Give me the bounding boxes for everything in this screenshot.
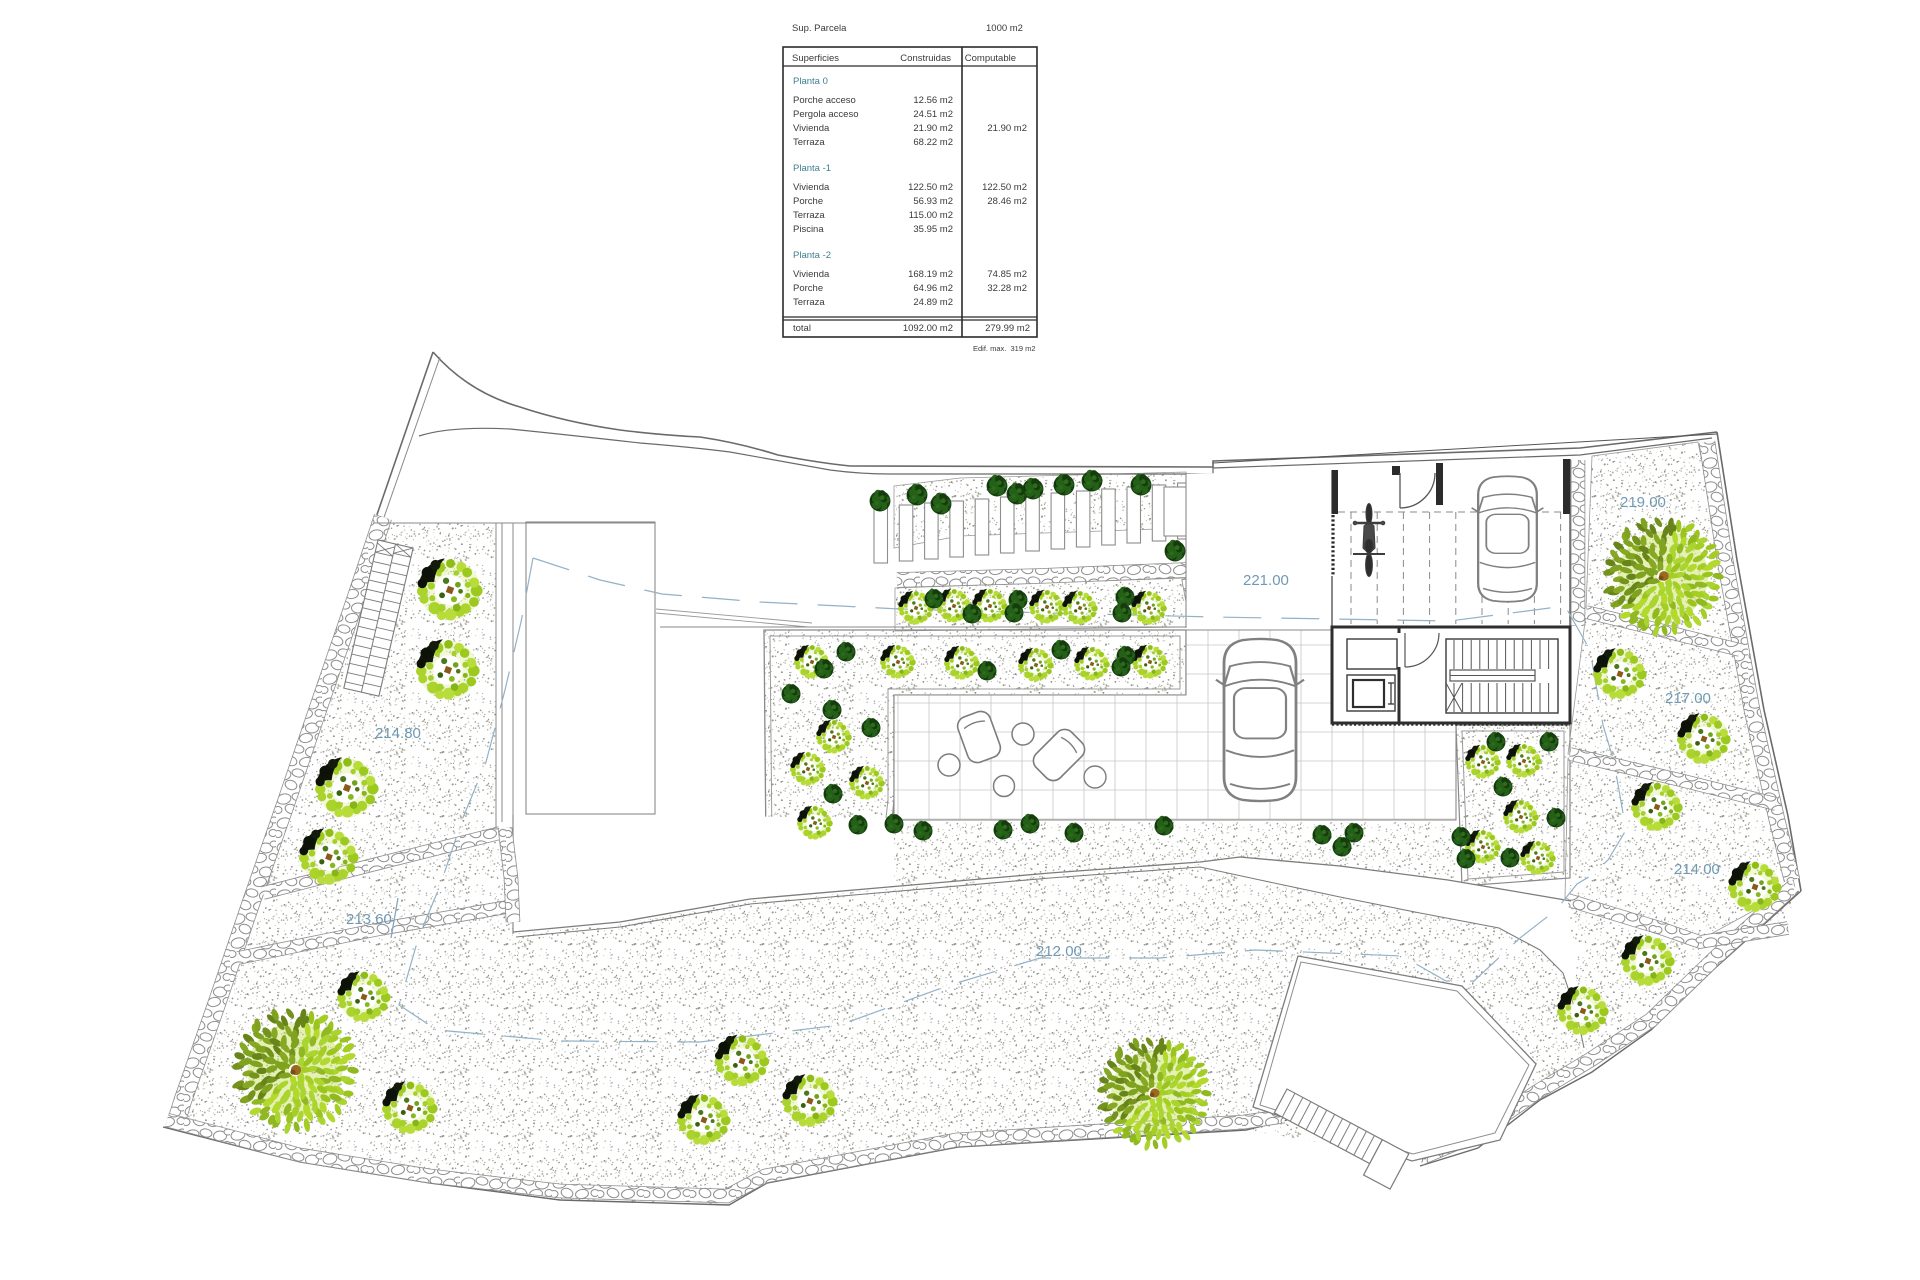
svg-text:Edif. max. 319 m2: Edif. max. 319 m2 <box>973 344 1036 353</box>
svg-text:32.28 m2: 32.28 m2 <box>987 283 1027 294</box>
svg-text:214.80: 214.80 <box>375 725 421 742</box>
svg-text:Terraza: Terraza <box>793 297 825 308</box>
svg-text:Sup. Parcela: Sup. Parcela <box>792 23 847 34</box>
svg-text:221.00: 221.00 <box>1243 572 1289 589</box>
svg-text:279.99 m2: 279.99 m2 <box>985 323 1030 334</box>
svg-text:1092.00 m2: 1092.00 m2 <box>903 323 953 334</box>
svg-text:Piscina: Piscina <box>793 224 824 235</box>
svg-text:total: total <box>793 323 811 334</box>
svg-text:Computable: Computable <box>965 53 1016 64</box>
svg-text:12.56 m2: 12.56 m2 <box>913 95 953 106</box>
svg-text:Porche acceso: Porche acceso <box>793 95 856 106</box>
svg-text:1000 m2: 1000 m2 <box>986 23 1023 34</box>
svg-text:214.00: 214.00 <box>1674 861 1720 878</box>
svg-text:21.90 m2: 21.90 m2 <box>913 123 953 134</box>
svg-text:212.00: 212.00 <box>1036 943 1082 960</box>
svg-text:115.00 m2: 115.00 m2 <box>909 210 953 221</box>
svg-text:Pergola acceso: Pergola acceso <box>793 109 858 120</box>
svg-text:213.60: 213.60 <box>346 911 392 928</box>
svg-text:56.93 m2: 56.93 m2 <box>913 196 953 207</box>
svg-text:219.00: 219.00 <box>1620 494 1666 511</box>
svg-text:Porche: Porche <box>793 196 823 207</box>
svg-text:24.89 m2: 24.89 m2 <box>913 297 953 308</box>
svg-text:122.50 m2: 122.50 m2 <box>982 182 1027 193</box>
svg-text:24.51 m2: 24.51 m2 <box>913 109 953 120</box>
svg-text:68.22 m2: 68.22 m2 <box>913 137 953 148</box>
svg-text:168.19 m2: 168.19 m2 <box>908 269 953 280</box>
svg-text:21.90 m2: 21.90 m2 <box>987 123 1027 134</box>
svg-text:28.46 m2: 28.46 m2 <box>987 196 1027 207</box>
svg-text:74.85 m2: 74.85 m2 <box>987 269 1027 280</box>
svg-text:Planta -2: Planta -2 <box>793 250 831 261</box>
svg-text:Planta 0: Planta 0 <box>793 76 828 87</box>
svg-text:Vivienda: Vivienda <box>793 182 830 193</box>
svg-text:Terraza: Terraza <box>793 137 825 148</box>
svg-text:122.50 m2: 122.50 m2 <box>908 182 953 193</box>
svg-text:Vivienda: Vivienda <box>793 123 830 134</box>
svg-text:Construidas: Construidas <box>900 53 951 64</box>
svg-text:217.00: 217.00 <box>1665 690 1711 707</box>
svg-text:Planta -1: Planta -1 <box>793 163 831 174</box>
svg-text:Superficies: Superficies <box>792 53 839 64</box>
svg-text:Terraza: Terraza <box>793 210 825 221</box>
svg-text:Porche: Porche <box>793 283 823 294</box>
svg-text:Vivienda: Vivienda <box>793 269 830 280</box>
svg-text:35.95 m2: 35.95 m2 <box>913 224 953 235</box>
svg-text:64.96 m2: 64.96 m2 <box>913 283 953 294</box>
